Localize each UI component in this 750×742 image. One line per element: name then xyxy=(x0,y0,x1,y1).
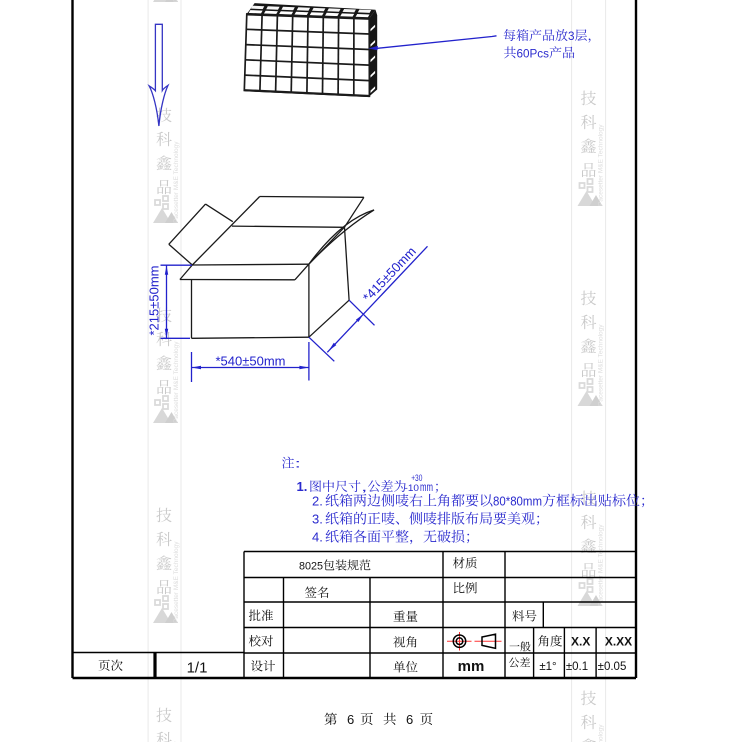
svg-text:6: 6 xyxy=(347,712,354,727)
svg-text:Pacesetter M&E Technology: Pacesetter M&E Technology xyxy=(598,724,605,742)
svg-text:Pacesetter M&E Technology: Pacesetter M&E Technology xyxy=(173,541,180,623)
svg-text:3: 3 xyxy=(568,29,575,43)
svg-text:Pacesetter M&E Technology: Pacesetter M&E Technology xyxy=(598,124,605,206)
svg-text:X.XX: X.XX xyxy=(605,635,632,649)
svg-text:Pacesetter M&E Technology: Pacesetter M&E Technology xyxy=(598,324,605,406)
svg-text:1.: 1. xyxy=(297,479,308,494)
svg-text:4.: 4. xyxy=(312,530,323,545)
svg-text:mm: mm xyxy=(458,658,485,675)
svg-text:±0.1: ±0.1 xyxy=(566,661,588,673)
svg-text:2.: 2. xyxy=(312,494,323,509)
svg-text:6: 6 xyxy=(406,712,413,727)
svg-text:*415±50mm: *415±50mm xyxy=(360,244,419,305)
svg-text:*540±50mm: *540±50mm xyxy=(216,353,286,368)
svg-text:1/1: 1/1 xyxy=(187,660,208,677)
svg-text:3.: 3. xyxy=(312,512,323,527)
svg-text:8025: 8025 xyxy=(299,561,323,573)
svg-text:Pacesetter M&E Technology: Pacesetter M&E Technology xyxy=(173,0,180,2)
svg-text:±1°: ±1° xyxy=(539,661,556,673)
svg-text:80*80mm: 80*80mm xyxy=(493,494,542,509)
svg-text:,: , xyxy=(361,480,368,494)
svg-text:±0.05: ±0.05 xyxy=(598,661,627,673)
svg-text:Pacesetter M&E Technology: Pacesetter M&E Technology xyxy=(173,341,180,423)
svg-text:mm: mm xyxy=(420,480,433,494)
svg-text:-10: -10 xyxy=(405,483,420,494)
svg-text:X.X: X.X xyxy=(571,635,590,649)
svg-text:Pacesetter M&E Technology: Pacesetter M&E Technology xyxy=(173,141,180,223)
svg-text:*215±50mm: *215±50mm xyxy=(147,265,162,335)
svg-text:60Pcs: 60Pcs xyxy=(517,46,550,60)
svg-text:Pacesetter M&E Technology: Pacesetter M&E Technology xyxy=(598,524,605,606)
svg-text::: : xyxy=(295,457,302,471)
